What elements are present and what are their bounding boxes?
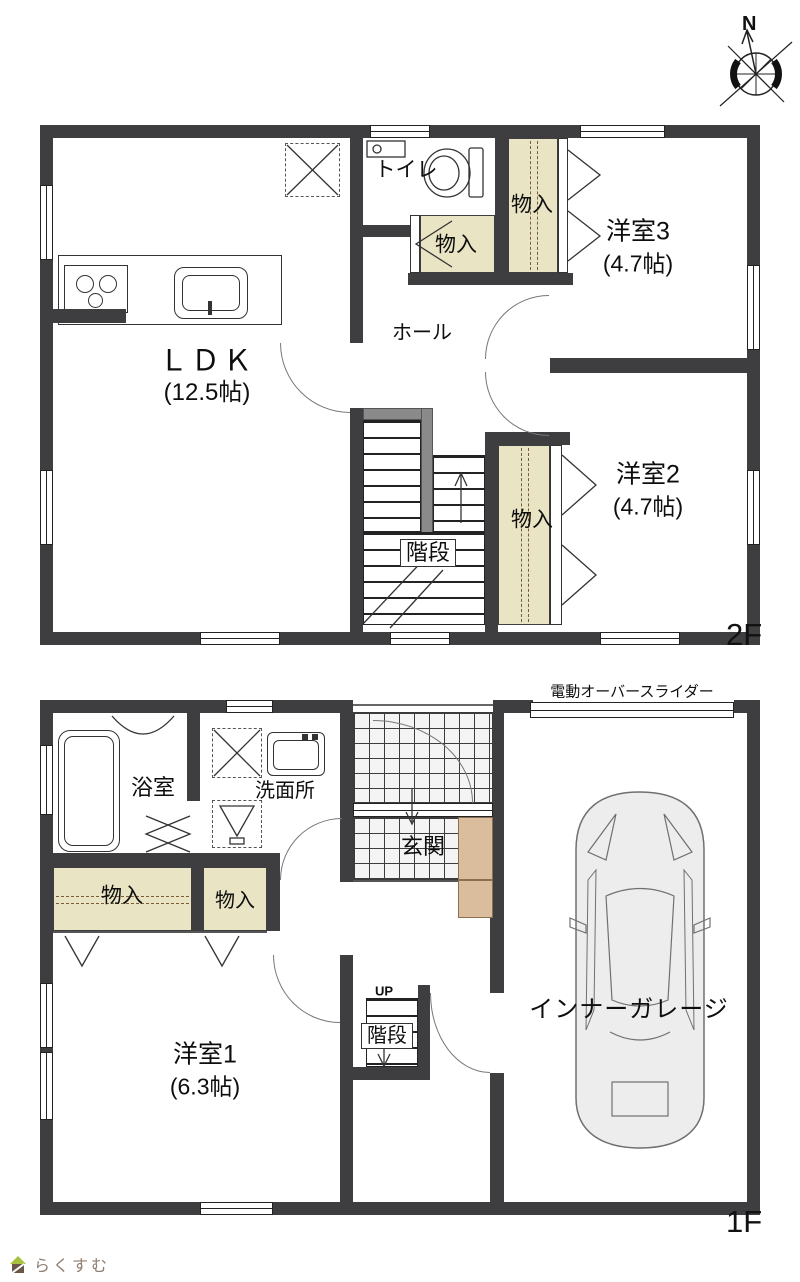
shoe-cabinet (458, 880, 493, 918)
wall-segment (485, 445, 498, 632)
room-size-ldk: (12.5帖) (164, 381, 251, 405)
floor-2f-plan: ＬＤＫ (12.5帖) トイレ 物入 物入 洋室3 (4.7帖) ホール 物入 … (40, 125, 760, 645)
room-size-room3: (4.7帖) (603, 253, 673, 276)
window (200, 1202, 273, 1215)
floor-1f-plan: 浴室 洗面所 玄関 物入 物入 洋室1 (6.3帖) UP 階段 インナーガレー… (40, 700, 760, 1215)
room-size-room1: (6.3帖) (170, 1076, 240, 1099)
room-label-stairs-2f: 階段 (400, 539, 456, 567)
wall-segment (53, 309, 126, 323)
stove-burner (76, 275, 94, 293)
stair-treads (363, 420, 421, 532)
wall-segment (363, 225, 410, 237)
room-label-stairs-1f: 階段 (361, 1023, 413, 1049)
window (370, 125, 430, 138)
window (40, 745, 53, 815)
compass-icon: N (714, 8, 798, 112)
closet-door-chevron (562, 455, 596, 515)
kitchen-faucet (208, 301, 212, 315)
floor-plan-page: { "compass": { "label": "N" }, "floor2":… (0, 0, 800, 1282)
bath-folding-door (146, 816, 190, 852)
stair-treads (433, 455, 485, 532)
wall-segment (187, 713, 200, 801)
room-label-closet-left: 物入 (101, 886, 143, 907)
stair-railing (421, 408, 433, 533)
floor-label-2f: 2F (726, 617, 762, 653)
wall-segment (267, 867, 280, 931)
window (40, 470, 53, 545)
room-label-washroom: 洗面所 (255, 781, 315, 801)
porch-edge (353, 704, 493, 706)
room-label-closet-top: 物入 (511, 195, 553, 216)
window (747, 265, 760, 350)
closet-door-line (53, 931, 267, 933)
room-label-closet-center: 物入 (435, 235, 477, 256)
closet-hanger-line (521, 448, 529, 622)
window (600, 632, 680, 645)
room-label-room2: 洋室2 (616, 463, 680, 488)
window (40, 185, 53, 260)
washing-machine-space (212, 728, 262, 778)
logo-text: らくすむ (34, 1252, 110, 1276)
toilet-tank (469, 148, 483, 197)
room-label-hall: ホール (392, 323, 452, 343)
logo-house-icon (8, 1254, 28, 1274)
wall-segment (495, 273, 573, 285)
stairs-up-label: UP (375, 985, 393, 998)
room-size-room2: (4.7帖) (613, 496, 683, 519)
compass-north-letter: N (742, 13, 756, 35)
closet-bifold-mark (205, 936, 239, 966)
room-label-room1: 洋室1 (173, 1043, 237, 1068)
door-swing-room1 (273, 955, 340, 1023)
refrigerator-space (285, 143, 340, 197)
window (390, 632, 450, 645)
wall-segment (40, 700, 353, 713)
window (40, 983, 53, 1048)
closet-door-chevron (568, 150, 600, 200)
door-swing-garage (430, 993, 490, 1073)
closet-door (558, 138, 568, 273)
wall-segment (350, 138, 363, 343)
door-swing-ldk (280, 343, 350, 413)
wall-segment (550, 358, 760, 373)
closet-door-chevron (562, 545, 596, 605)
closet-bifold-mark (65, 936, 99, 966)
bathtub-inner (64, 736, 114, 846)
entrance-door (353, 803, 493, 817)
closet-door (550, 445, 562, 625)
room-label-bath: 浴室 (131, 777, 175, 799)
wall-segment (340, 955, 353, 1202)
window (747, 470, 760, 545)
garage-shutter-label: 電動オーバースライダー (550, 685, 714, 700)
window (40, 1052, 53, 1120)
window (226, 700, 273, 713)
room-label-ldk: ＬＤＫ (159, 348, 255, 377)
wall-segment (192, 867, 203, 931)
wall-segment (490, 1073, 504, 1202)
stove-burner (99, 275, 117, 293)
door-swing-washroom (280, 818, 342, 880)
room-label-closet-right: 物入 (215, 891, 255, 911)
door-swing-room2 (485, 372, 549, 436)
wall-segment (485, 432, 570, 445)
closet-door-chevron (568, 211, 600, 261)
room-label-entrance: 玄関 (401, 836, 445, 858)
vanity-faucet (312, 734, 318, 740)
room-label-garage: インナーガレージ (529, 998, 729, 1022)
toilet-hand-basin (367, 141, 405, 157)
bath-folding-door (146, 816, 190, 852)
closet-door (410, 215, 420, 273)
logo: らくすむ (8, 1252, 110, 1276)
window (580, 125, 665, 138)
room-label-room3: 洋室3 (606, 220, 670, 245)
wall-segment (53, 853, 280, 867)
wall-segment (495, 138, 508, 285)
car-icon (570, 792, 710, 1148)
washer-pan (212, 800, 262, 848)
floor-label-1f: 1F (726, 1204, 762, 1240)
vanity-sink-basin (273, 740, 319, 770)
closet (498, 445, 550, 625)
wall-segment (40, 1202, 760, 1215)
wall-segment (408, 273, 508, 285)
room-label-closet-bottom: 物入 (511, 510, 553, 531)
wall-segment (353, 1067, 430, 1080)
garage-shutter-opening (530, 702, 734, 718)
room-label-toilet: トイレ (375, 160, 438, 181)
door-swing-room3 (485, 295, 549, 359)
bath-counter-curve (112, 716, 174, 734)
window (200, 632, 280, 645)
wall-segment (747, 700, 760, 1215)
wall-segment (350, 408, 363, 632)
stove-burner (88, 293, 103, 308)
vanity-faucet (302, 734, 308, 740)
wall-segment (747, 125, 760, 645)
entrance-step-edge (353, 880, 458, 882)
wall-segment (418, 985, 430, 1080)
shoe-cabinet (458, 817, 493, 880)
